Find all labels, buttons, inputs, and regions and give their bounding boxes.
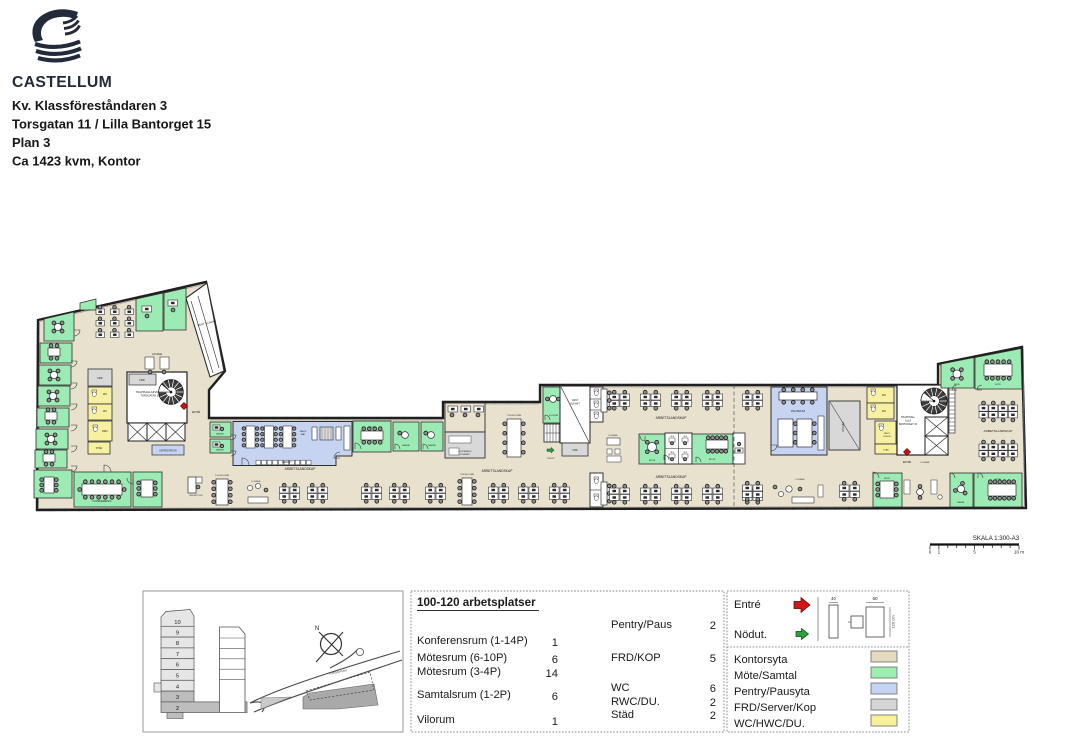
svg-text:WC: WC: [103, 410, 107, 413]
svg-text:Mötesrum (6-10P): Mötesrum (6-10P): [417, 652, 507, 664]
svg-text:NÖDUT: NÖDUT: [547, 457, 555, 460]
svg-text:5: 5: [710, 653, 716, 665]
svg-text:FRD: FRD: [139, 378, 144, 382]
svg-text:Kontorsyta: Kontorsyta: [734, 654, 788, 666]
svg-text:Möte/Samtal: Möte/Samtal: [734, 670, 797, 682]
svg-text:ARBETSLANDSKAP: ARBETSLANDSKAP: [656, 475, 688, 479]
svg-text:ENTRÉ: ENTRÉ: [903, 461, 912, 464]
svg-text:ARBETSLANDSKAP: ARBETSLANDSKAP: [656, 416, 688, 420]
svg-text:Konferensrum (1-14P): Konferensrum (1-14P): [417, 635, 528, 647]
svg-text:KOPIERING/: KOPIERING/: [459, 451, 472, 453]
svg-text:SAMTAL: SAMTAL: [216, 433, 225, 436]
svg-text:FRD/Server/Kop: FRD/Server/Kop: [734, 702, 816, 714]
svg-text:6: 6: [176, 663, 179, 669]
svg-text:RWC/DU.: RWC/DU.: [611, 696, 660, 708]
svg-text:RECEPTION: RECEPTION: [190, 495, 203, 497]
svg-text:VILORUM: VILORUM: [549, 415, 558, 417]
svg-text:WC: WC: [882, 410, 886, 413]
svg-text:LOUNGE: LOUNGE: [251, 481, 261, 483]
svg-text:Städ: Städ: [611, 709, 634, 721]
svg-text:CASTELLUM: CASTELLUM: [12, 74, 112, 91]
svg-text:Nödut.: Nödut.: [734, 629, 767, 641]
svg-text:5: 5: [176, 674, 179, 680]
svg-text:6: 6: [710, 683, 716, 695]
svg-text:ARBETSLANDSKAP: ARBETSLANDSKAP: [984, 429, 1013, 433]
svg-text:MÖTE: MÖTE: [995, 383, 1001, 386]
svg-text:8: 8: [176, 641, 179, 647]
svg-text:0: 0: [929, 550, 932, 555]
svg-text:STÄD: STÄD: [96, 447, 103, 450]
svg-text:KAFFESTATION: KAFFESTATION: [159, 450, 176, 453]
svg-text:STÄD: STÄD: [883, 449, 889, 452]
svg-text:FRD: FRD: [573, 449, 578, 452]
svg-text:MÖTE: MÖTE: [709, 458, 716, 461]
svg-text:RWC/: RWC/: [884, 433, 890, 435]
svg-text:SAMTAL: SAMTAL: [428, 444, 437, 447]
svg-text:SCHAKT: SCHAKT: [570, 403, 580, 406]
svg-text:WC: WC: [882, 394, 886, 397]
svg-text:RWC: RWC: [102, 430, 108, 433]
svg-text:100-120 arbetsplatser: 100-120 arbetsplatser: [417, 596, 536, 609]
svg-text:FRD/KOP: FRD/KOP: [611, 652, 661, 664]
svg-text:PAUS/: PAUS/: [300, 430, 307, 433]
svg-text:TOUCH DOWN: TOUCH DOWN: [460, 474, 475, 476]
svg-text:Torsgatan 11 / Lilla Bantorget: Torsgatan 11 / Lilla Bantorget 15: [12, 117, 211, 132]
svg-text:1: 1: [938, 550, 941, 555]
svg-text:ARBETSLANDSKAP: ARBETSLANDSKAP: [285, 467, 317, 471]
svg-text:2: 2: [710, 710, 716, 722]
svg-text:Kv. Klassföreståndaren 3: Kv. Klassföreståndaren 3: [12, 98, 167, 113]
svg-text:PENTRY: PENTRY: [282, 461, 292, 464]
svg-text:7: 7: [176, 652, 179, 658]
svg-text:Vilorum: Vilorum: [417, 714, 455, 726]
svg-text:SKALA 1:300-A3: SKALA 1:300-A3: [973, 535, 1020, 542]
svg-text:Plan 3: Plan 3: [12, 135, 50, 150]
svg-text:6: 6: [552, 691, 558, 703]
svg-text:40: 40: [831, 596, 836, 601]
svg-text:SAMTAL: SAMTAL: [216, 449, 225, 452]
svg-text:2: 2: [176, 706, 179, 712]
svg-text:Pentry/Paus: Pentry/Paus: [611, 619, 672, 631]
svg-text:PAUSRUM: PAUSRUM: [791, 409, 805, 413]
svg-text:2: 2: [710, 697, 716, 709]
svg-text:UTSKRIFT: UTSKRIFT: [460, 454, 471, 456]
svg-text:10: 10: [174, 620, 180, 626]
svg-text:KONFERENS: KONFERENS: [93, 499, 112, 503]
svg-text:Mötesrum (3-4P): Mötesrum (3-4P): [417, 666, 501, 678]
svg-text:10 m: 10 m: [1014, 550, 1024, 555]
svg-text:LOUNGE: LOUNGE: [152, 353, 163, 356]
svg-text:Entré: Entré: [734, 599, 761, 611]
svg-text:1: 1: [552, 637, 558, 649]
svg-text:MAT: MAT: [301, 433, 306, 436]
svg-text:MÖTE: MÖTE: [369, 426, 376, 429]
svg-text:SAMTAL: SAMTAL: [957, 501, 964, 504]
svg-text:MÖTE: MÖTE: [649, 459, 656, 462]
svg-text:LOUNGE: LOUNGE: [795, 479, 805, 481]
svg-text:WC: WC: [103, 393, 107, 396]
svg-text:DUSCH: DUSCH: [883, 436, 891, 438]
svg-text:6: 6: [552, 654, 558, 666]
svg-text:TOUCH DOWN: TOUCH DOWN: [507, 415, 522, 417]
svg-text:3: 3: [176, 695, 179, 701]
svg-text:9: 9: [176, 630, 179, 636]
svg-text:TORSGATAN 11: TORSGATAN 11: [140, 394, 160, 398]
svg-text:BANTORGET 15: BANTORGET 15: [899, 423, 918, 426]
svg-text:60: 60: [872, 596, 878, 601]
svg-text:Pentry/Pausyta: Pentry/Pausyta: [734, 686, 811, 698]
svg-text:SAMTAL: SAMTAL: [402, 444, 411, 447]
svg-text:WC: WC: [611, 682, 630, 694]
svg-text:TOUCH DOWN: TOUCH DOWN: [215, 475, 230, 477]
svg-text:1: 1: [552, 716, 558, 728]
svg-text:5: 5: [973, 550, 976, 555]
svg-text:ARBETSLANDSKAP: ARBETSLANDSKAP: [482, 469, 514, 473]
svg-text:N: N: [315, 626, 319, 632]
svg-text:WC/HWC/DU.: WC/HWC/DU.: [734, 718, 805, 730]
svg-text:Ca 1423 kvm, Kontor: Ca 1423 kvm, Kontor: [12, 154, 141, 169]
svg-text:Samtalsrum (1-2P): Samtalsrum (1-2P): [417, 689, 511, 701]
svg-text:LOUNGE: LOUNGE: [920, 462, 930, 464]
svg-text:120 cm: 120 cm: [891, 615, 896, 629]
svg-text:14: 14: [546, 668, 558, 680]
svg-text:2: 2: [710, 620, 716, 632]
svg-text:MÖTE: MÖTE: [995, 478, 1001, 481]
svg-text:FRD: FRD: [97, 376, 102, 380]
svg-text:ENTRÉ: ENTRÉ: [192, 411, 201, 414]
svg-text:FÖRRÅD: FÖRRÅD: [842, 422, 845, 432]
svg-text:MÖTE: MÖTE: [884, 477, 890, 480]
svg-text:LOUNGE: LOUNGE: [608, 435, 618, 437]
